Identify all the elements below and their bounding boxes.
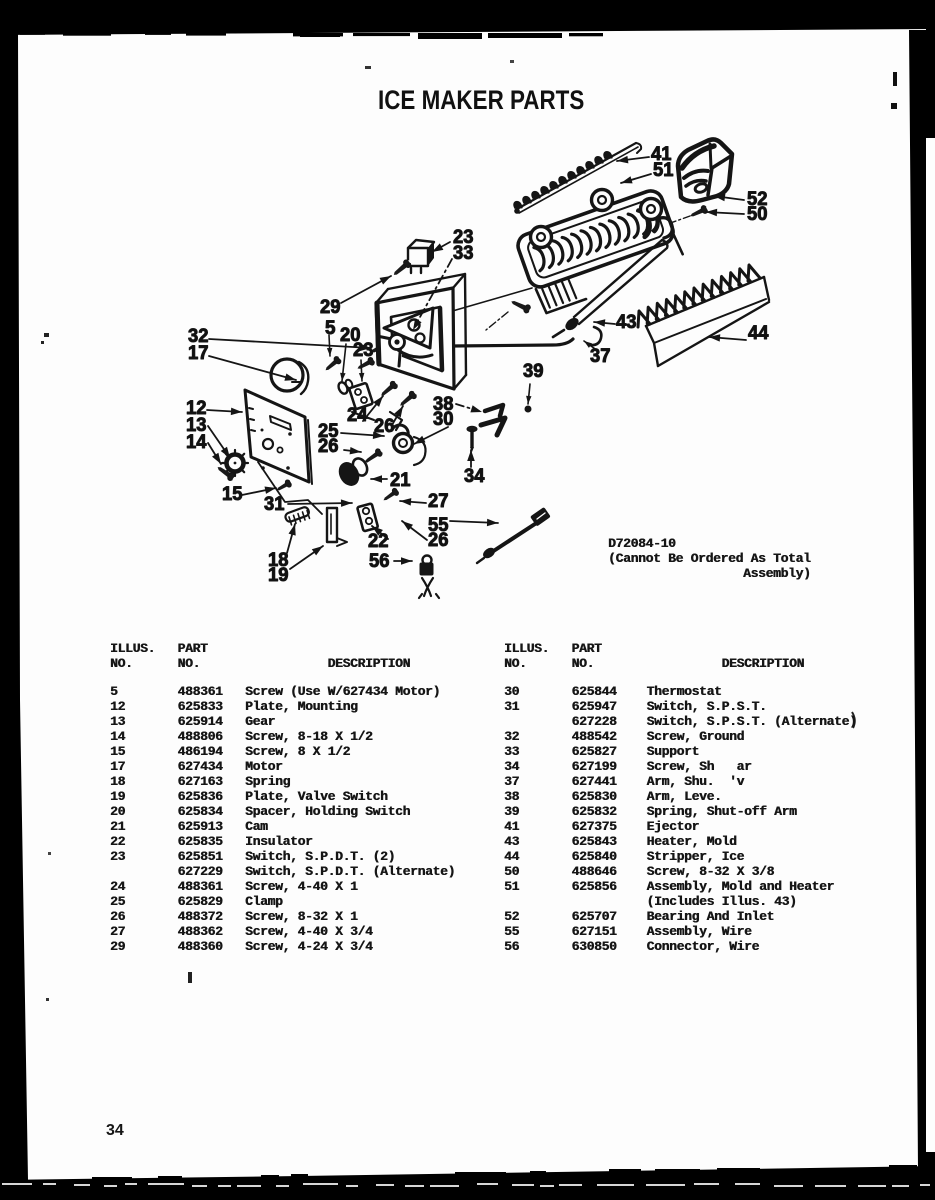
svg-text:5: 5 [325,317,336,339]
svg-text:26: 26 [428,529,449,551]
svg-text:51: 51 [653,159,674,181]
svg-text:31: 31 [264,493,285,515]
svg-text:44: 44 [748,322,769,344]
svg-text:15: 15 [222,483,243,505]
svg-text:27: 27 [428,490,449,512]
svg-text:17: 17 [188,342,209,364]
svg-text:24: 24 [347,404,368,426]
svg-text:22: 22 [368,530,389,552]
svg-text:43: 43 [616,311,637,333]
svg-text:26: 26 [318,435,339,457]
svg-text:50: 50 [747,203,768,225]
svg-text:26: 26 [374,415,395,437]
svg-text:19: 19 [268,564,289,586]
svg-text:34: 34 [464,465,485,487]
svg-text:23: 23 [353,339,374,361]
svg-text:39: 39 [523,360,544,382]
svg-text:30: 30 [433,408,454,430]
svg-text:21: 21 [390,469,411,491]
svg-text:37: 37 [590,345,611,367]
svg-text:33: 33 [453,242,474,264]
svg-text:14: 14 [186,431,207,453]
svg-text:29: 29 [320,296,341,318]
svg-text:56: 56 [369,550,390,572]
